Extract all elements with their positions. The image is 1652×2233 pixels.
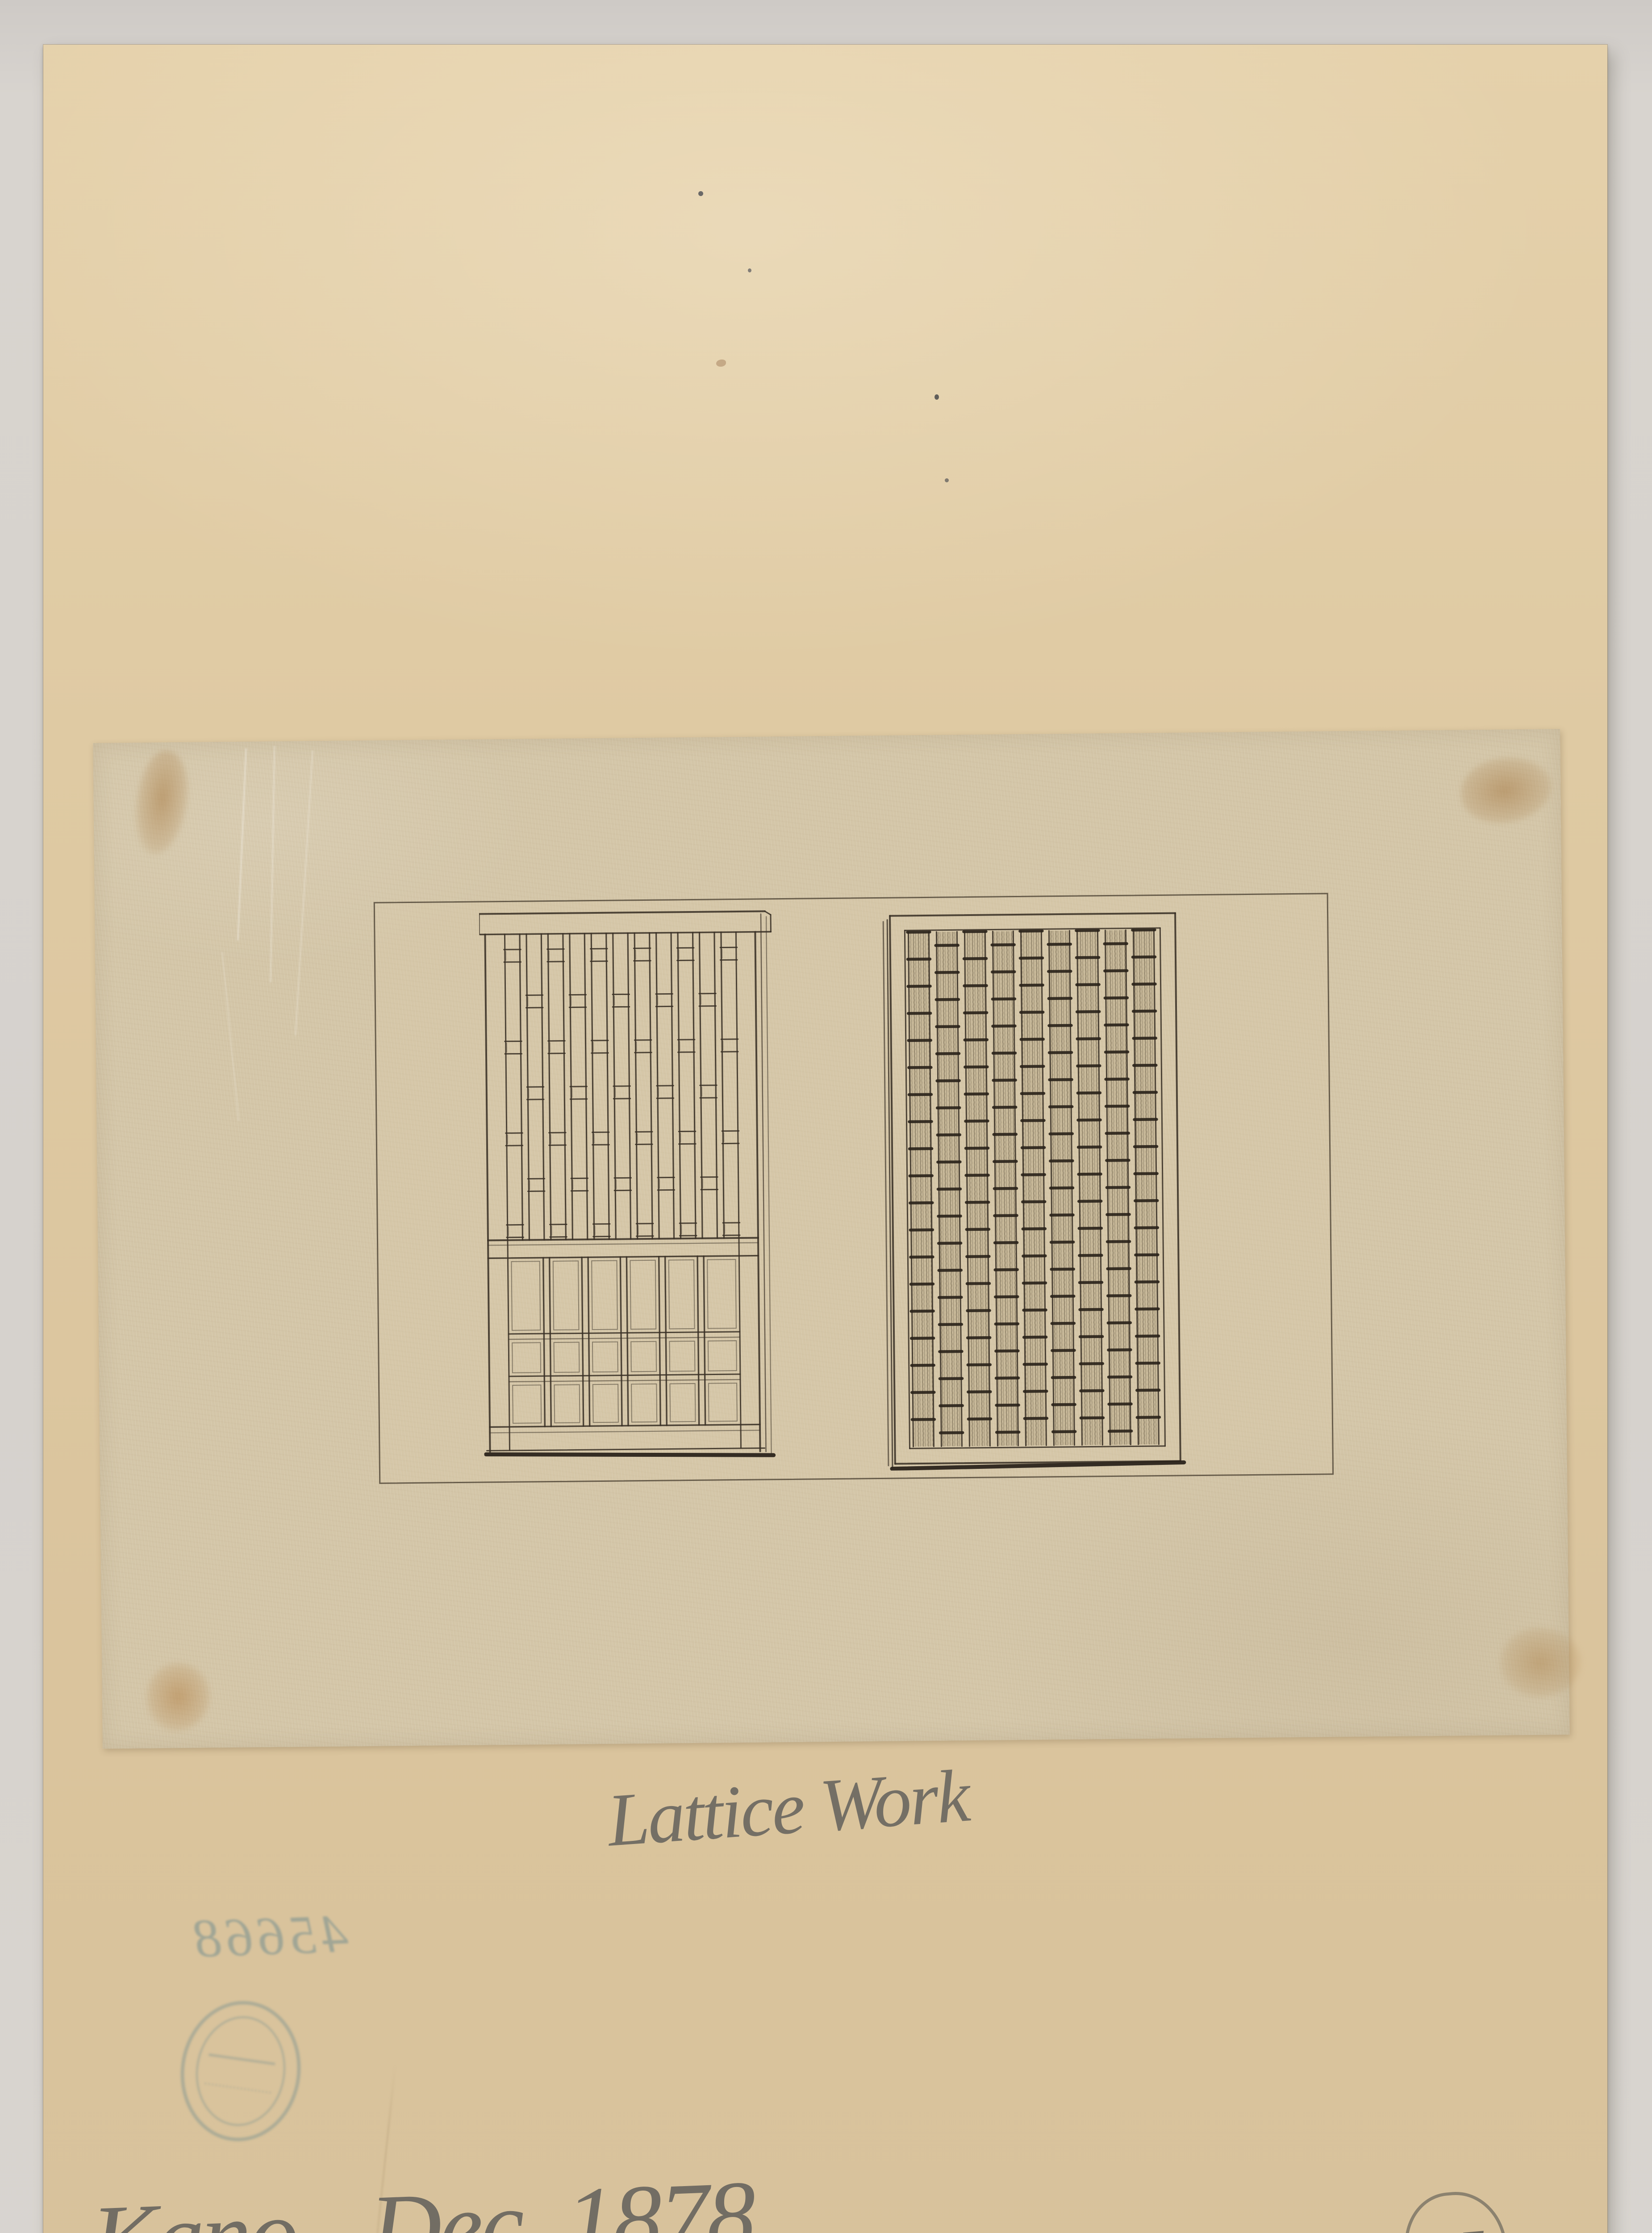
paper-speck: [748, 268, 751, 272]
adhesive-stain-top-left: [129, 748, 194, 858]
sheen-streak: [270, 746, 275, 983]
paper-speck: [945, 478, 949, 482]
library-stamp: [171, 1993, 309, 2149]
adhesive-stain-bottom-left: [146, 1662, 211, 1731]
paper-speck: [698, 191, 703, 196]
sheen-streak: [295, 750, 313, 1036]
lattice-panel-left: [479, 909, 777, 1472]
scan-background: Lattice Work 45668 Kano - Dec. 1878 15: [0, 0, 1652, 2233]
paper-speck: [934, 394, 939, 400]
accession-number-bleedthrough: 45668: [138, 1903, 350, 1972]
paper-speck: [716, 360, 726, 367]
drawing-plate-border: [374, 893, 1334, 1484]
sheen-streak: [237, 749, 246, 941]
page-number: 15: [1420, 2214, 1493, 2233]
adhesive-stain-top-right: [1457, 752, 1556, 828]
lattice-panel-right: [882, 912, 1187, 1470]
sheen-streak: [221, 952, 239, 1121]
tissue-paper: [93, 729, 1569, 1748]
